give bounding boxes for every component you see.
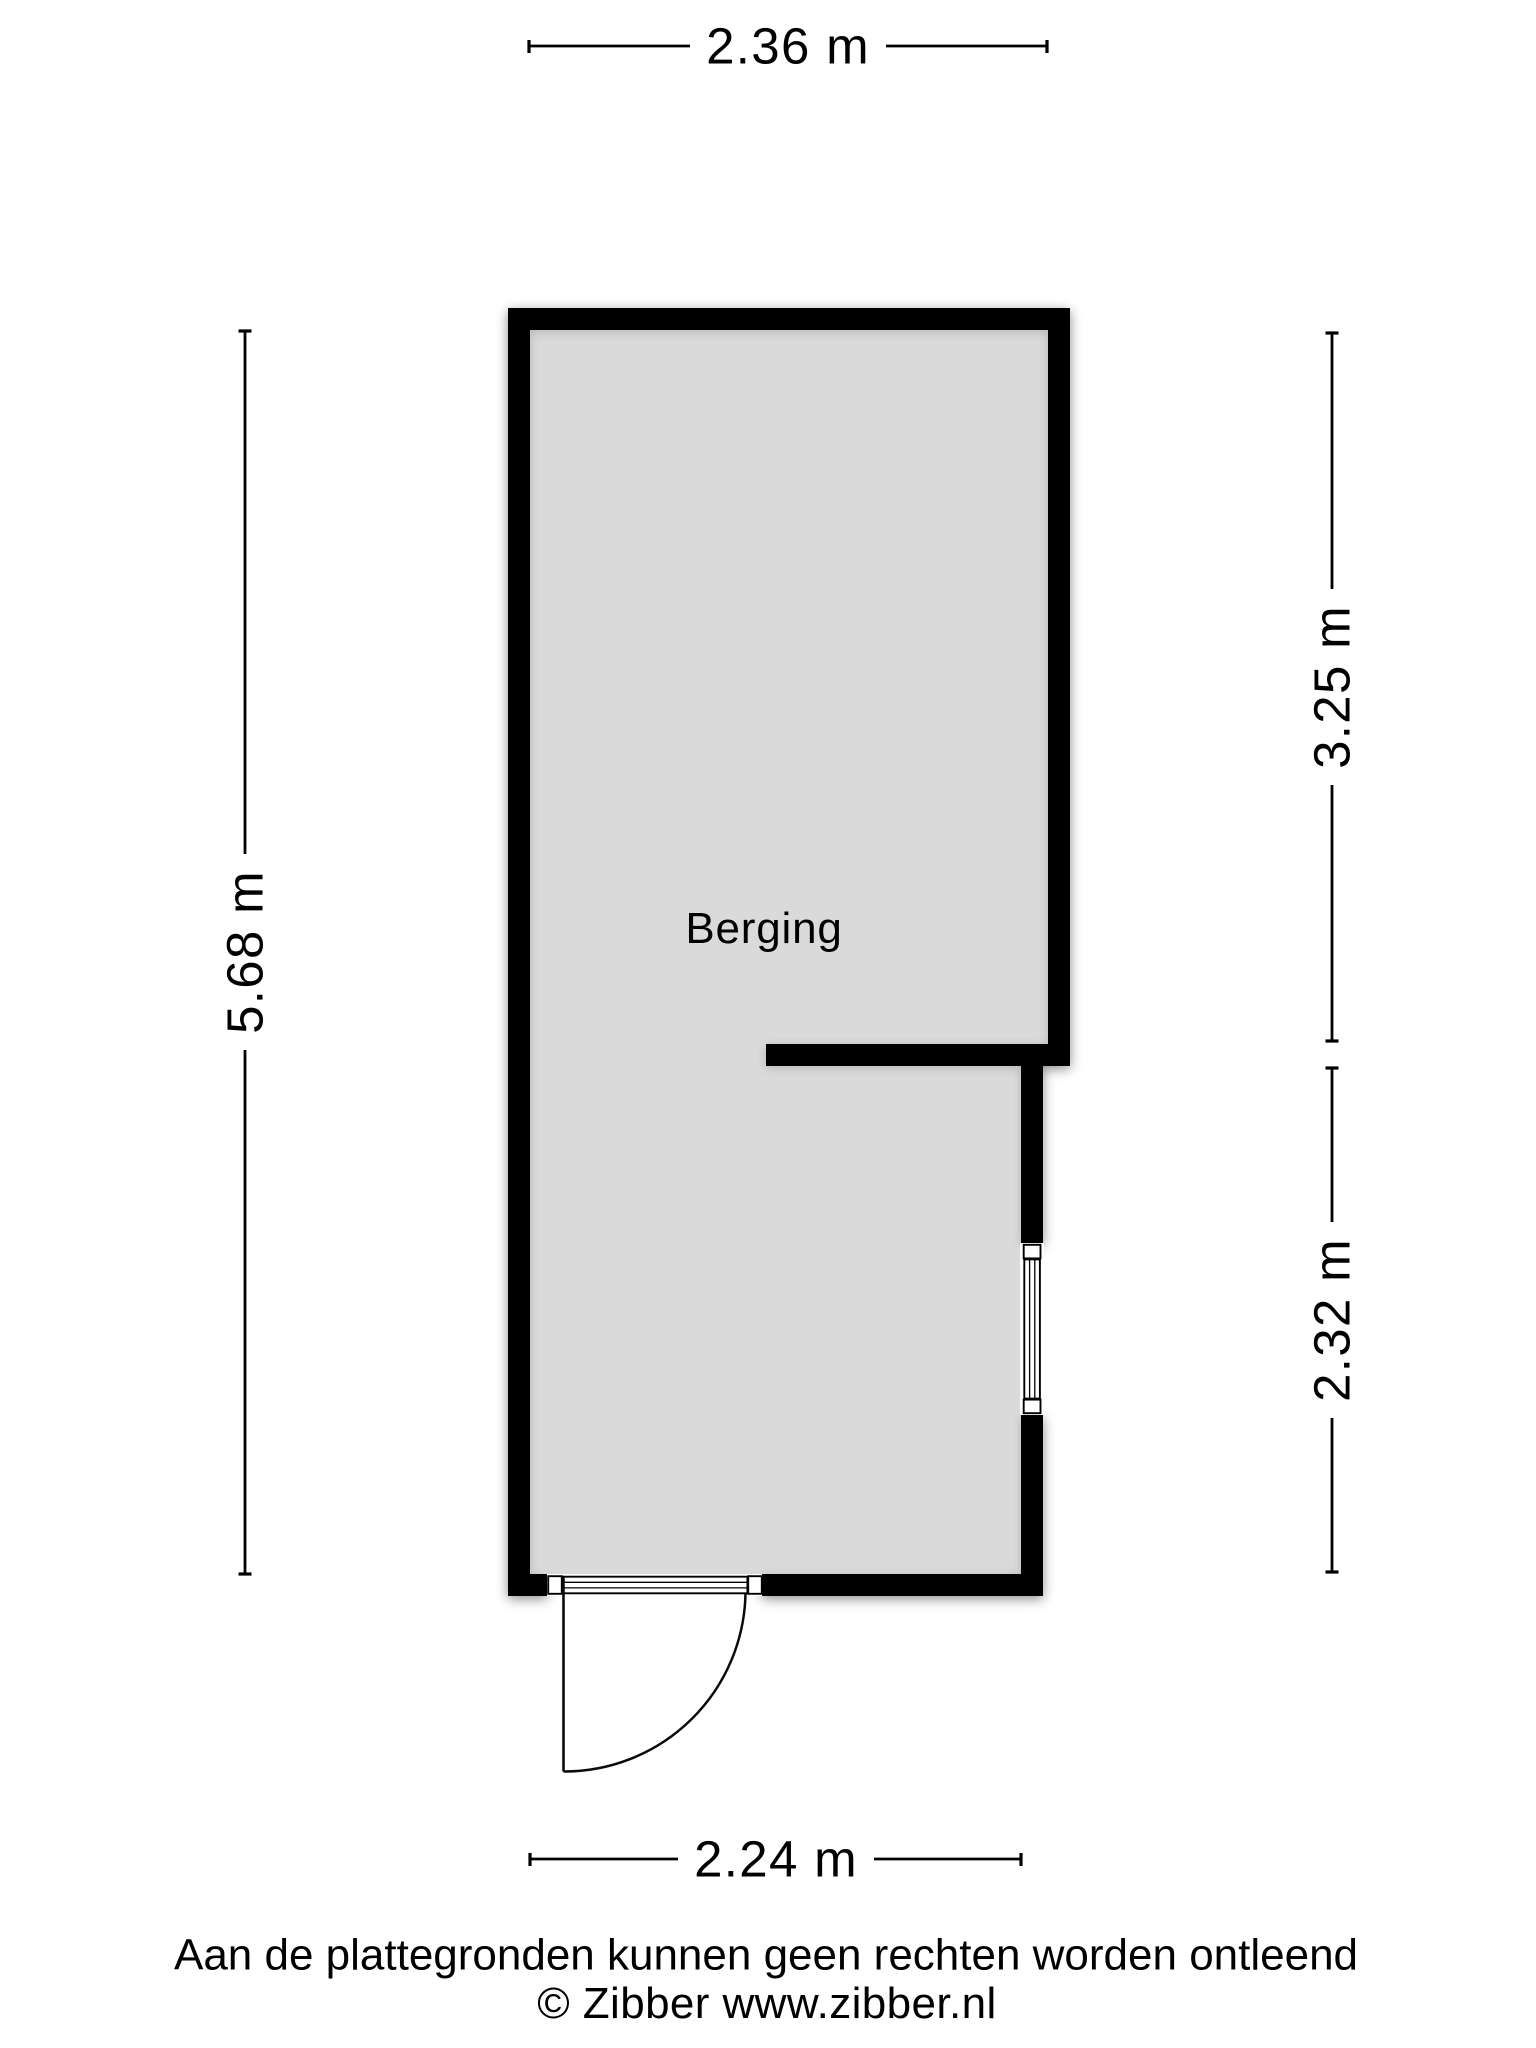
svg-text:5.68 m: 5.68 m	[217, 870, 274, 1034]
svg-text:2.24 m: 2.24 m	[694, 1831, 858, 1888]
svg-text:2.32 m: 2.32 m	[1304, 1238, 1361, 1402]
svg-text:© Zibber www.zibber.nl: © Zibber www.zibber.nl	[537, 1979, 996, 2028]
svg-text:3.25 m: 3.25 m	[1304, 605, 1361, 769]
svg-text:2.36 m: 2.36 m	[706, 18, 870, 75]
svg-text:Berging: Berging	[685, 904, 842, 953]
svg-text:Aan de plattegronden kunnen ge: Aan de plattegronden kunnen geen rechten…	[174, 1931, 1358, 1980]
